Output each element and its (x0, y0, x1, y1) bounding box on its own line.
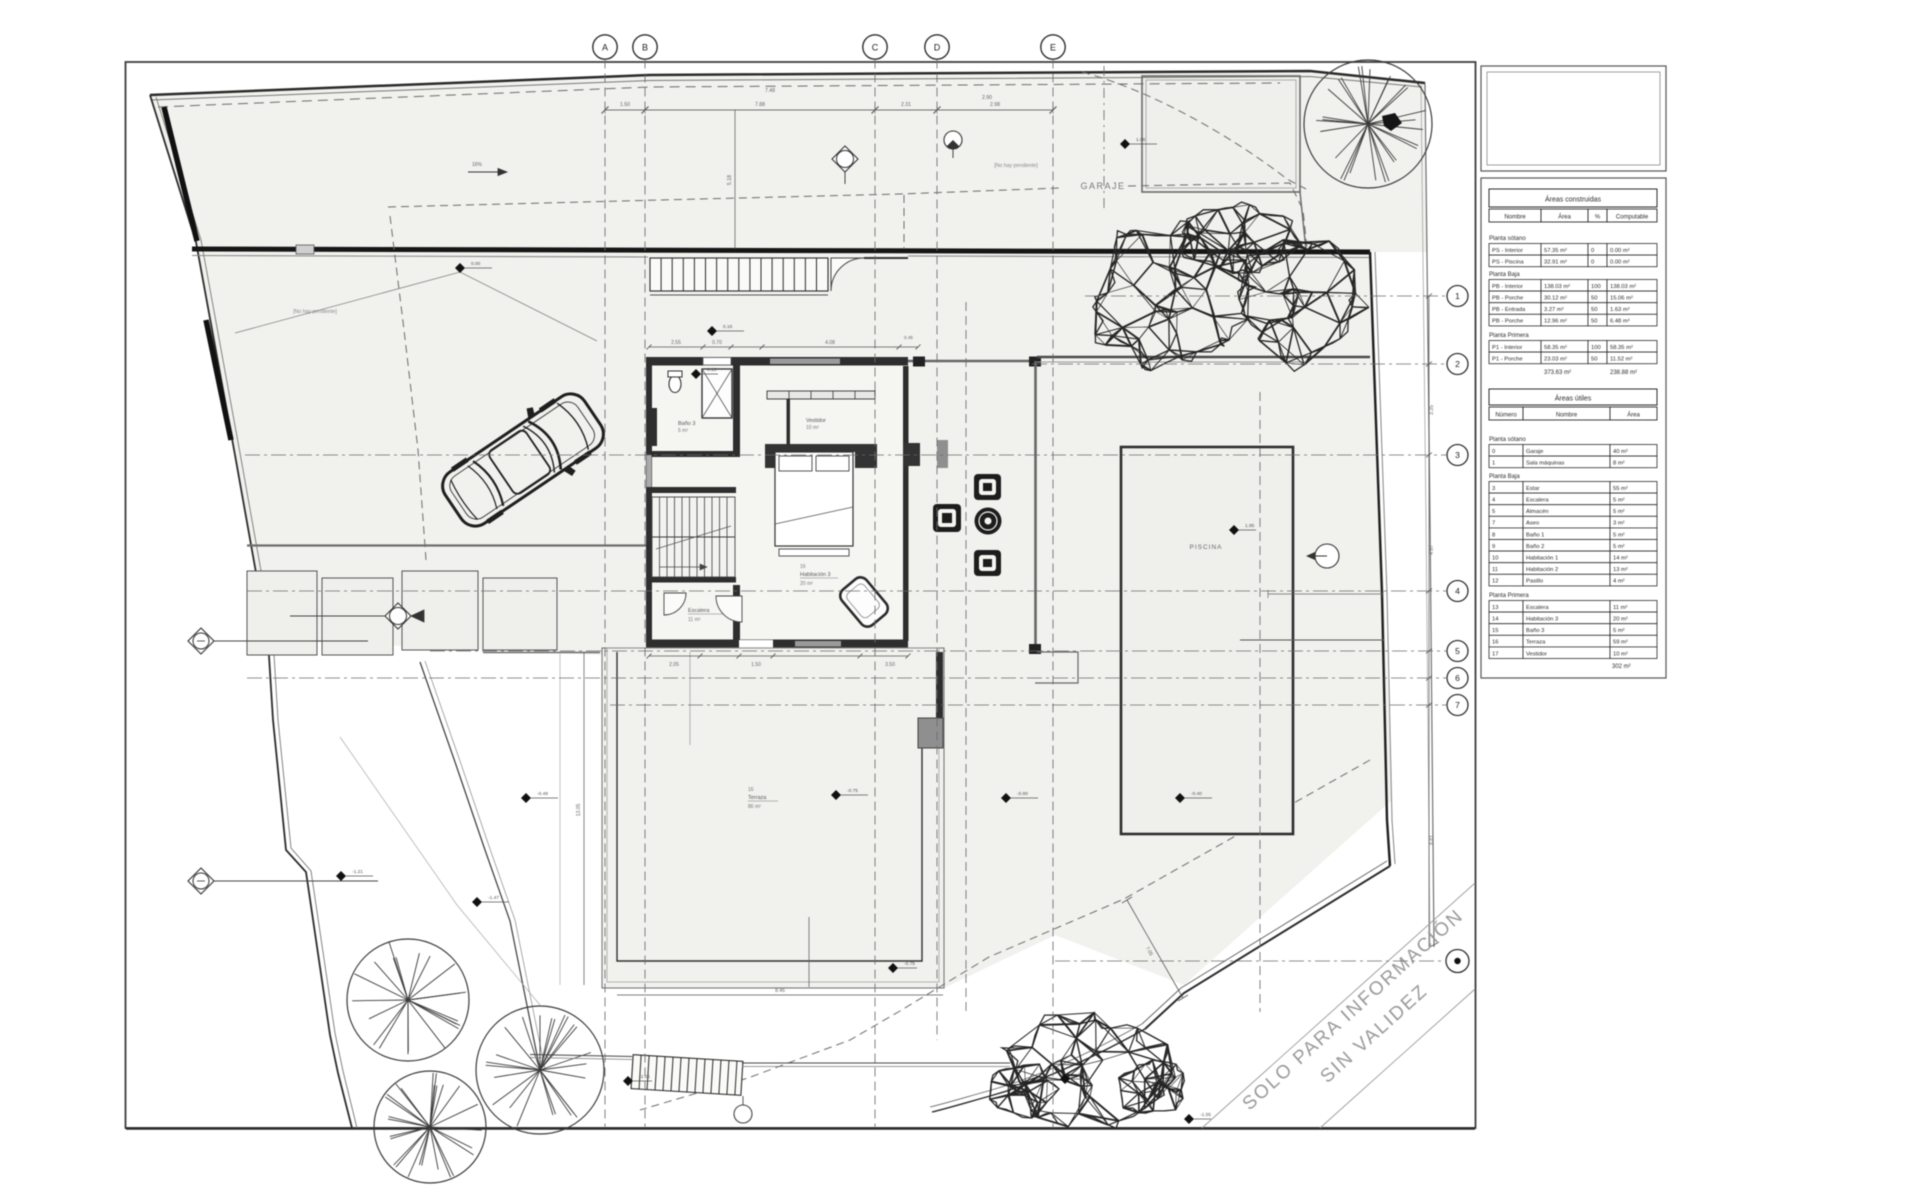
svg-text:8.81: 8.81 (1429, 835, 1435, 845)
svg-text:8: 8 (1492, 532, 1495, 538)
svg-text:Escalera: Escalera (1526, 498, 1549, 504)
svg-text:Vestidor: Vestidor (806, 418, 826, 424)
svg-text:2.55: 2.55 (671, 340, 681, 346)
svg-text:P1 - Porche: P1 - Porche (1492, 357, 1523, 363)
svg-text:[No hay pendiente]: [No hay pendiente] (994, 163, 1038, 169)
svg-text:16: 16 (1492, 640, 1498, 646)
svg-text:5 m²: 5 m² (1613, 498, 1625, 504)
svg-text:1: 1 (1455, 291, 1460, 301)
svg-text:P1 - Interior: P1 - Interior (1492, 345, 1522, 351)
svg-text:-1.21: -1.21 (352, 869, 363, 875)
svg-text:Número: Número (1495, 413, 1517, 419)
svg-text:Habitación 2: Habitación 2 (1526, 567, 1558, 573)
svg-text:4: 4 (1455, 586, 1460, 596)
svg-text:23.03 m²: 23.03 m² (1544, 357, 1567, 363)
svg-text:1.50: 1.50 (751, 662, 761, 668)
svg-text:E: E (1050, 43, 1056, 53)
svg-text:5: 5 (1492, 509, 1495, 515)
svg-text:Computable: Computable (1616, 215, 1649, 221)
svg-text:PB - Porche: PB - Porche (1492, 296, 1523, 302)
svg-text:5 m²: 5 m² (1613, 532, 1625, 538)
svg-text:12: 12 (1492, 579, 1498, 585)
svg-text:Baño 3: Baño 3 (678, 421, 695, 427)
svg-text:2.98: 2.98 (990, 102, 1000, 108)
svg-text:Planta sótano: Planta sótano (1489, 236, 1526, 242)
svg-text:Planta Baja: Planta Baja (1489, 272, 1520, 278)
svg-text:7.48: 7.48 (765, 88, 775, 94)
svg-text:2.05: 2.05 (669, 662, 679, 668)
svg-text:Escalera: Escalera (688, 608, 710, 614)
svg-text:Escalera: Escalera (1526, 605, 1549, 611)
svg-text:12.96 m²: 12.96 m² (1544, 319, 1567, 325)
svg-text:5 m²: 5 m² (1613, 509, 1625, 515)
svg-text:302 m²: 302 m² (1612, 664, 1631, 670)
svg-text:30.12 m²: 30.12 m² (1544, 296, 1567, 302)
svg-text:16%: 16% (472, 162, 483, 168)
svg-text:13.05: 13.05 (576, 804, 582, 817)
svg-text:A: A (602, 43, 608, 53)
svg-text:3.35: 3.35 (1429, 405, 1435, 415)
svg-text:Nombre: Nombre (1556, 413, 1578, 419)
svg-text:0.45: 0.45 (904, 335, 913, 340)
svg-text:238.88 m²: 238.88 m² (1610, 370, 1637, 376)
svg-text:3 m²: 3 m² (1613, 521, 1625, 527)
svg-text:4 m²: 4 m² (1613, 579, 1625, 585)
svg-text:Estar: Estar (1526, 486, 1540, 492)
svg-text:Área: Área (1627, 412, 1640, 419)
svg-text:-1.55: -1.55 (1076, 1072, 1087, 1078)
svg-text:-0.75: -0.75 (847, 788, 858, 794)
svg-text:100: 100 (1591, 284, 1601, 290)
svg-text:Nombre: Nombre (1504, 215, 1526, 221)
svg-text:B: B (642, 43, 648, 53)
svg-text:Áreas construidas: Áreas construidas (1545, 195, 1602, 204)
svg-text:Baño 3: Baño 3 (1526, 628, 1544, 634)
svg-text:Vestidor: Vestidor (1526, 651, 1547, 657)
svg-text:58.35 m²: 58.35 m² (1610, 345, 1633, 351)
svg-text:Planta Baja: Planta Baja (1489, 474, 1520, 480)
svg-text:2.31: 2.31 (901, 102, 911, 108)
svg-text:100: 100 (1591, 345, 1601, 351)
svg-text:Garaje: Garaje (1526, 449, 1543, 455)
svg-text:1.95: 1.95 (1245, 523, 1255, 529)
svg-text:50: 50 (1591, 296, 1597, 302)
svg-text:9: 9 (1492, 544, 1495, 550)
svg-text:0.15: 0.15 (707, 367, 717, 373)
svg-text:15.06 m²: 15.06 m² (1610, 296, 1633, 302)
svg-text:-0.80: -0.80 (1017, 791, 1028, 797)
svg-text:57.35 m²: 57.35 m² (1544, 248, 1567, 254)
svg-text:PB - Porche: PB - Porche (1492, 319, 1523, 325)
svg-text:PISCINA: PISCINA (1189, 544, 1222, 551)
svg-text:Habitación 3: Habitación 3 (800, 572, 831, 578)
svg-text:1.50: 1.50 (620, 102, 630, 108)
svg-text:-1.55: -1.55 (1200, 1112, 1211, 1118)
svg-text:5 m²: 5 m² (1613, 544, 1625, 550)
svg-text:D: D (934, 43, 941, 53)
svg-text:-0.75: -0.75 (904, 961, 915, 967)
svg-text:50: 50 (1591, 357, 1597, 363)
svg-text:7: 7 (1492, 521, 1495, 527)
svg-text:1.63 m²: 1.63 m² (1610, 307, 1630, 313)
svg-text:0: 0 (1591, 260, 1594, 266)
svg-text:Aseo: Aseo (1526, 521, 1539, 527)
svg-text:11: 11 (1492, 567, 1498, 573)
svg-text:PB - Entrada: PB - Entrada (1492, 307, 1526, 313)
svg-text:6: 6 (1455, 673, 1460, 683)
svg-text:50: 50 (1591, 307, 1597, 313)
svg-text:8 m²: 8 m² (1613, 461, 1625, 467)
svg-text:Área: Área (1558, 214, 1571, 221)
svg-text:Habitación 3: Habitación 3 (1526, 617, 1558, 623)
svg-text:Baño 1: Baño 1 (1526, 532, 1544, 538)
svg-text:8.46: 8.46 (775, 988, 785, 994)
svg-text:%: % (1595, 215, 1601, 221)
svg-text:86 m²: 86 m² (748, 804, 761, 810)
svg-text:5.18: 5.18 (727, 175, 733, 185)
svg-text:Sala máquinas: Sala máquinas (1526, 461, 1564, 467)
svg-text:138.03 m²: 138.03 m² (1544, 284, 1570, 290)
svg-text:1: 1 (1492, 461, 1495, 467)
svg-text:10: 10 (1492, 556, 1498, 562)
svg-text:[No hay pendiente]: [No hay pendiente] (293, 309, 337, 315)
svg-text:0.70: 0.70 (712, 340, 722, 346)
svg-text:6.48 m²: 6.48 m² (1610, 319, 1630, 325)
svg-text:0: 0 (1492, 449, 1495, 455)
svg-text:2: 2 (1455, 359, 1460, 369)
svg-text:16: 16 (800, 564, 806, 570)
svg-text:Almacén: Almacén (1526, 509, 1549, 515)
svg-text:Pasillo: Pasillo (1526, 579, 1543, 585)
svg-text:40 m²: 40 m² (1613, 449, 1628, 455)
svg-text:20 m²: 20 m² (800, 581, 813, 587)
svg-text:2.90: 2.90 (982, 95, 992, 101)
svg-text:14 m²: 14 m² (1613, 556, 1628, 562)
svg-text:C: C (872, 43, 879, 53)
svg-text:-1.47: -1.47 (488, 895, 499, 901)
svg-text:-0.40: -0.40 (1191, 791, 1202, 797)
svg-text:11 m²: 11 m² (688, 617, 701, 623)
svg-text:3.50: 3.50 (885, 662, 895, 668)
svg-text:0: 0 (1591, 248, 1594, 254)
svg-text:20 m²: 20 m² (1613, 617, 1628, 623)
svg-text:Planta Primera: Planta Primera (1489, 333, 1529, 339)
svg-text:GARAJE: GARAJE (1080, 181, 1125, 191)
svg-text:3: 3 (1455, 450, 1460, 460)
svg-text:13 m²: 13 m² (1613, 567, 1628, 573)
svg-text:4.08: 4.08 (825, 340, 835, 346)
svg-text:Baño 2: Baño 2 (1526, 544, 1544, 550)
svg-text:7.88: 7.88 (755, 102, 765, 108)
svg-text:16: 16 (748, 787, 754, 793)
svg-text:10 m²: 10 m² (1613, 651, 1628, 657)
svg-text:5: 5 (1455, 646, 1460, 656)
svg-text:138.03 m²: 138.03 m² (1610, 284, 1636, 290)
svg-text:3.27 m²: 3.27 m² (1544, 307, 1564, 313)
svg-text:15: 15 (1492, 628, 1498, 634)
svg-text:32.91 m²: 32.91 m² (1544, 260, 1567, 266)
svg-text:58.35 m²: 58.35 m² (1544, 345, 1567, 351)
svg-text:7: 7 (1455, 700, 1460, 710)
svg-text:14: 14 (1492, 617, 1499, 623)
svg-text:3: 3 (1492, 486, 1495, 492)
svg-text:50: 50 (1591, 319, 1597, 325)
svg-text:Planta sótano: Planta sótano (1489, 437, 1526, 443)
svg-text:55 m²: 55 m² (1613, 486, 1628, 492)
svg-text:59 m²: 59 m² (1613, 640, 1628, 646)
svg-text:0.00: 0.00 (471, 261, 481, 267)
svg-text:11.52 m²: 11.52 m² (1610, 357, 1633, 363)
svg-text:13: 13 (1492, 605, 1498, 611)
svg-text:Áreas útiles: Áreas útiles (1555, 394, 1592, 403)
svg-text:373.63 m²: 373.63 m² (1544, 370, 1571, 376)
svg-text:0.16: 0.16 (723, 324, 733, 330)
svg-text:Planta Primera: Planta Primera (1489, 593, 1529, 599)
svg-text:10 m²: 10 m² (806, 425, 819, 431)
svg-text:Habitación 1: Habitación 1 (1526, 556, 1558, 562)
svg-text:-0.49: -0.49 (537, 791, 548, 797)
svg-text:0.00 m²: 0.00 m² (1610, 260, 1630, 266)
svg-text:Terraza: Terraza (748, 795, 767, 801)
svg-text:11 m²: 11 m² (1613, 605, 1627, 611)
svg-text:5 m²: 5 m² (678, 428, 688, 434)
svg-text:17: 17 (1492, 651, 1498, 657)
svg-text:1.06: 1.06 (1136, 137, 1146, 143)
svg-text:PS - Piscina: PS - Piscina (1492, 260, 1524, 266)
svg-text:PS - Interior: PS - Interior (1492, 248, 1523, 254)
svg-text:4.97: 4.97 (1429, 545, 1435, 555)
svg-text:PB - Interior: PB - Interior (1492, 284, 1523, 290)
svg-text:0.00 m²: 0.00 m² (1610, 248, 1630, 254)
svg-text:5 m²: 5 m² (1613, 628, 1625, 634)
svg-text:Terraza: Terraza (1526, 640, 1546, 646)
